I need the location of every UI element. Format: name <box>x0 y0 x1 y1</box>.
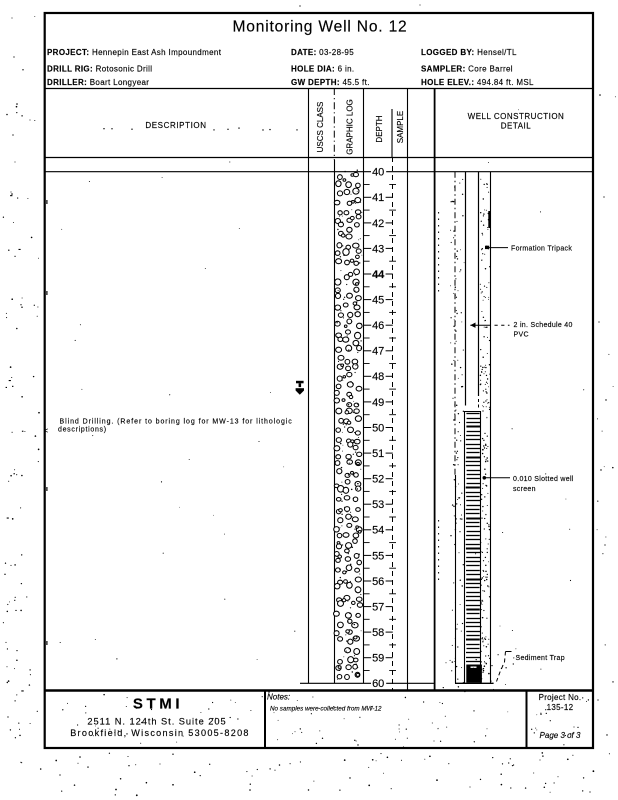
svg-text:Monitoring Well No. 12: Monitoring Well No. 12 <box>232 19 407 36</box>
svg-text:47: 47 <box>372 346 384 358</box>
svg-text:51: 51 <box>372 448 384 460</box>
svg-text:Brookfield, Wisconsin 53005-82: Brookfield, Wisconsin 53005-8208 <box>70 728 250 738</box>
svg-text:DESCRIPTION: DESCRIPTION <box>145 121 206 130</box>
svg-text:PROJECT: Hennepin East Ash Imp: PROJECT: Hennepin East Ash Impoundment <box>47 48 222 57</box>
svg-text:WELL CONSTRUCTION: WELL CONSTRUCTION <box>468 112 565 121</box>
svg-text:DETAIL: DETAIL <box>501 122 531 131</box>
svg-text:Page 3 of 3: Page 3 of 3 <box>540 731 581 740</box>
svg-text:Formation Tripack: Formation Tripack <box>511 246 572 253</box>
svg-text:0.010 Slotted well: 0.010 Slotted well <box>513 476 574 483</box>
svg-text:52: 52 <box>372 474 384 486</box>
svg-text:58: 58 <box>372 627 384 639</box>
svg-text:PVC: PVC <box>514 332 529 339</box>
svg-text:56: 56 <box>372 576 384 588</box>
svg-text:59: 59 <box>372 653 384 665</box>
svg-text:44: 44 <box>372 269 385 281</box>
svg-text:SAMPLER: Core Barrel: SAMPLER: Core Barrel <box>421 65 513 74</box>
svg-text:DEPTH: DEPTH <box>375 115 384 142</box>
svg-text:DATE: 03-28-95: DATE: 03-28-95 <box>291 48 354 57</box>
svg-text:GW DEPTH: 45.5 ft.: GW DEPTH: 45.5 ft. <box>291 78 370 87</box>
svg-text:Sediment Trap: Sediment Trap <box>516 655 565 662</box>
svg-text:53: 53 <box>372 499 384 511</box>
svg-text:49: 49 <box>372 397 384 409</box>
svg-text:57: 57 <box>372 602 384 614</box>
svg-text:Notes:: Notes: <box>267 693 290 702</box>
svg-text:50: 50 <box>372 422 384 434</box>
svg-text:DRILLER: Boart Longyear: DRILLER: Boart Longyear <box>47 78 149 87</box>
svg-text:DRILL RIG: Rotosonic Drill: DRILL RIG: Rotosonic Drill <box>47 65 152 74</box>
svg-text:135-12: 135-12 <box>547 703 574 712</box>
svg-text:HOLE DIA: 6 in.: HOLE DIA: 6 in. <box>291 65 355 74</box>
svg-text:Blind Drilling. (Refer to bori: Blind Drilling. (Refer to boring log for… <box>60 419 293 426</box>
svg-text:42: 42 <box>372 218 384 230</box>
svg-text:descriptions): descriptions) <box>58 427 107 434</box>
svg-text:41: 41 <box>372 192 384 204</box>
svg-text:60: 60 <box>372 678 384 690</box>
svg-text:screen: screen <box>513 486 536 493</box>
svg-text:GRAPHIC LOG: GRAPHIC LOG <box>346 99 355 155</box>
svg-text:HOLE ELEV.: 494.84 ft. MSL: HOLE ELEV.: 494.84 ft. MSL <box>421 78 534 87</box>
svg-text:2 in. Schedule 40: 2 in. Schedule 40 <box>514 322 573 329</box>
svg-text:46: 46 <box>372 320 384 332</box>
svg-text:48: 48 <box>372 371 384 383</box>
svg-text:<: < <box>44 428 48 435</box>
svg-text:STMI: STMI <box>133 696 183 713</box>
svg-text:Project No.: Project No. <box>539 693 582 702</box>
svg-text:43: 43 <box>372 243 384 255</box>
svg-text:40: 40 <box>372 167 384 179</box>
svg-text:55: 55 <box>372 550 384 562</box>
svg-text:SAMPLE: SAMPLE <box>396 111 405 143</box>
svg-text:No samples were collected from: No samples were collected from MW-12 <box>270 706 382 713</box>
svg-text:54: 54 <box>372 525 384 537</box>
svg-text:45: 45 <box>372 295 384 307</box>
svg-text:2511 N. 124th St. Suite 205: 2511 N. 124th St. Suite 205 <box>87 717 226 727</box>
svg-text:USCS CLASS: USCS CLASS <box>316 102 325 153</box>
svg-text:LOGGED BY: Hensel/TL: LOGGED BY: Hensel/TL <box>421 48 517 57</box>
